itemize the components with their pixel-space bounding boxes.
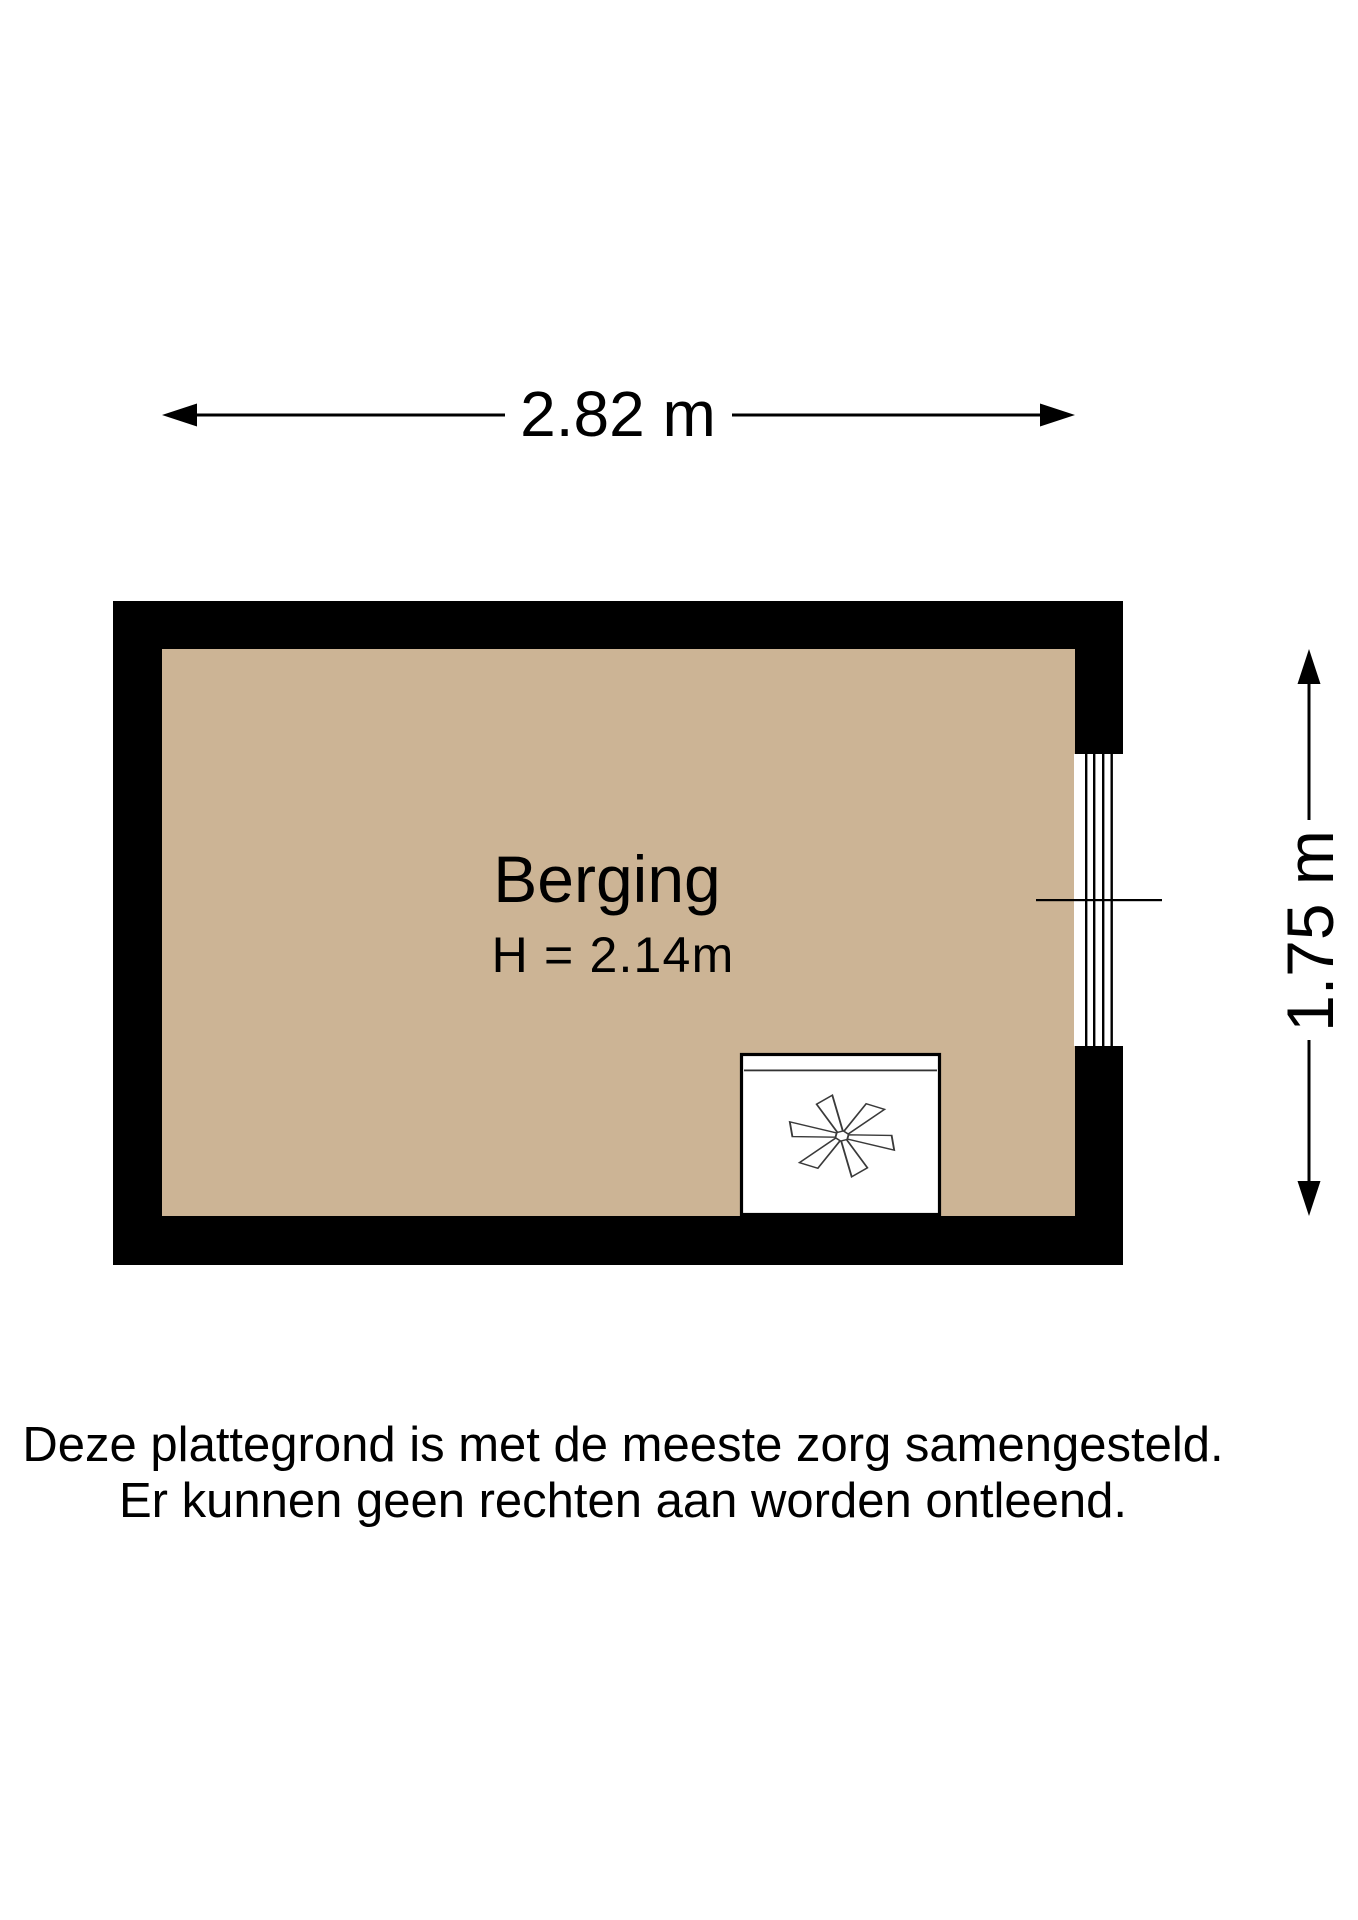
svg-text:Berging: Berging [493, 842, 721, 916]
svg-text:2.82 m: 2.82 m [520, 378, 716, 450]
svg-text:Deze plattegrond is met de mee: Deze plattegrond is met de meeste zorg s… [22, 1418, 1223, 1472]
svg-text:1.75 m: 1.75 m [1273, 830, 1347, 1032]
svg-text:H = 2.14m: H = 2.14m [492, 927, 735, 983]
svg-text:Er kunnen geen rechten aan wor: Er kunnen geen rechten aan worden ontlee… [119, 1474, 1127, 1528]
